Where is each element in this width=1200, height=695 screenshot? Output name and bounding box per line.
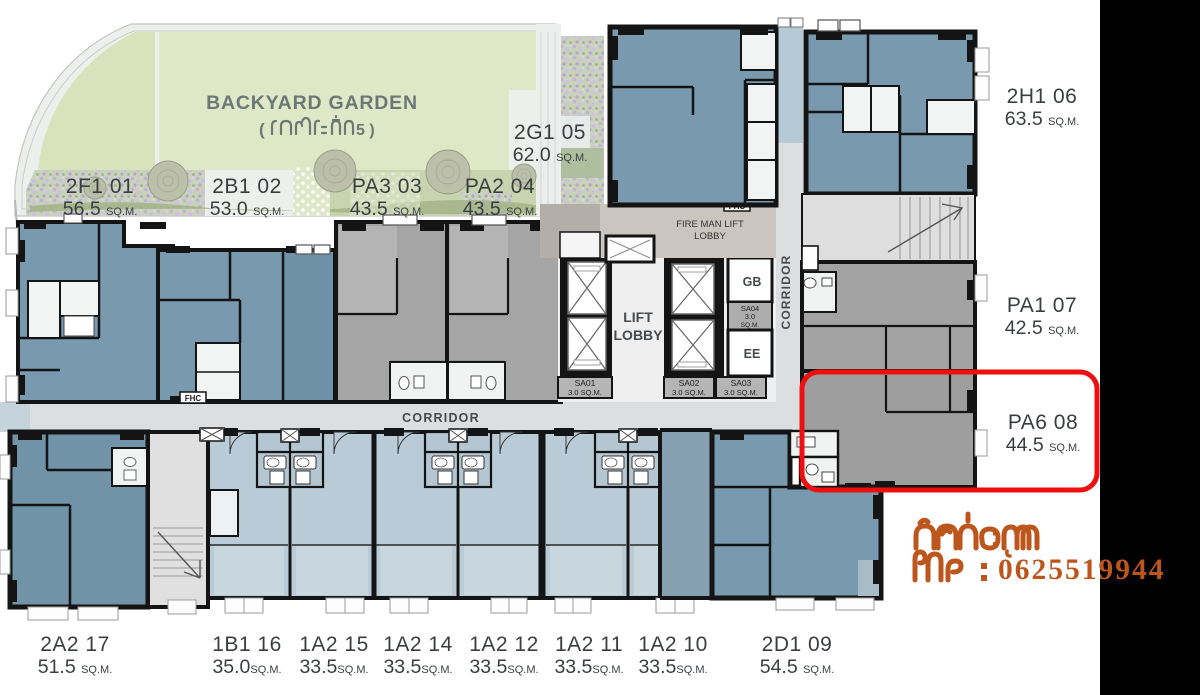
svg-text:CORRIDOR: CORRIDOR — [402, 411, 480, 425]
svg-text:SA01: SA01 — [575, 378, 596, 388]
svg-text:1B1 16: 1B1 16 — [212, 633, 282, 656]
svg-text:FHC: FHC — [185, 394, 202, 403]
svg-text:1A2 10: 1A2 10 — [638, 633, 708, 656]
svg-text:BACKYARD GARDEN: BACKYARD GARDEN — [206, 92, 418, 114]
svg-text:5 ): 5 ) — [356, 122, 375, 139]
svg-text:SA03: SA03 — [731, 378, 752, 388]
svg-text:LOBBY: LOBBY — [694, 231, 726, 242]
svg-text:SQ.M.: SQ.M. — [741, 322, 760, 329]
svg-text:1A2 11: 1A2 11 — [555, 633, 623, 656]
svg-text:3.0 SQ.M.: 3.0 SQ.M. — [568, 388, 602, 397]
svg-text:2D1 09: 2D1 09 — [762, 633, 833, 656]
svg-text:2H1 06: 2H1 06 — [1007, 85, 1078, 108]
svg-text:2G1 05: 2G1 05 — [514, 121, 586, 144]
svg-text:PA6 08: PA6 08 — [1008, 411, 1078, 434]
svg-text:3.0 SQ.M.: 3.0 SQ.M. — [724, 388, 758, 397]
svg-text:2A2 17: 2A2 17 — [40, 633, 110, 656]
svg-text:1A2 14: 1A2 14 — [383, 633, 453, 656]
svg-text:(: ( — [259, 120, 265, 139]
svg-text:LOBBY: LOBBY — [614, 327, 664, 343]
svg-text:2F1 01: 2F1 01 — [66, 175, 134, 198]
svg-text:PA2 04: PA2 04 — [465, 175, 535, 198]
svg-text:0625519944: 0625519944 — [998, 554, 1166, 586]
svg-text:EE: EE — [744, 347, 761, 361]
svg-text:SA02: SA02 — [679, 378, 700, 388]
svg-text:1A2 15: 1A2 15 — [299, 633, 369, 656]
svg-text:FIRE MAN LIFT: FIRE MAN LIFT — [676, 219, 744, 230]
svg-text:LIFT: LIFT — [623, 309, 653, 325]
svg-text:1A2 12: 1A2 12 — [469, 633, 539, 656]
svg-text:PA3 03: PA3 03 — [352, 175, 422, 198]
svg-text:3.0: 3.0 — [745, 312, 755, 321]
svg-text:2B1 02: 2B1 02 — [212, 175, 282, 198]
svg-text:3.0 SQ.M.: 3.0 SQ.M. — [672, 388, 706, 397]
svg-text:GB: GB — [743, 275, 762, 289]
svg-text:PA1 07: PA1 07 — [1007, 294, 1077, 317]
svg-text:CORRIDOR: CORRIDOR — [779, 255, 793, 330]
